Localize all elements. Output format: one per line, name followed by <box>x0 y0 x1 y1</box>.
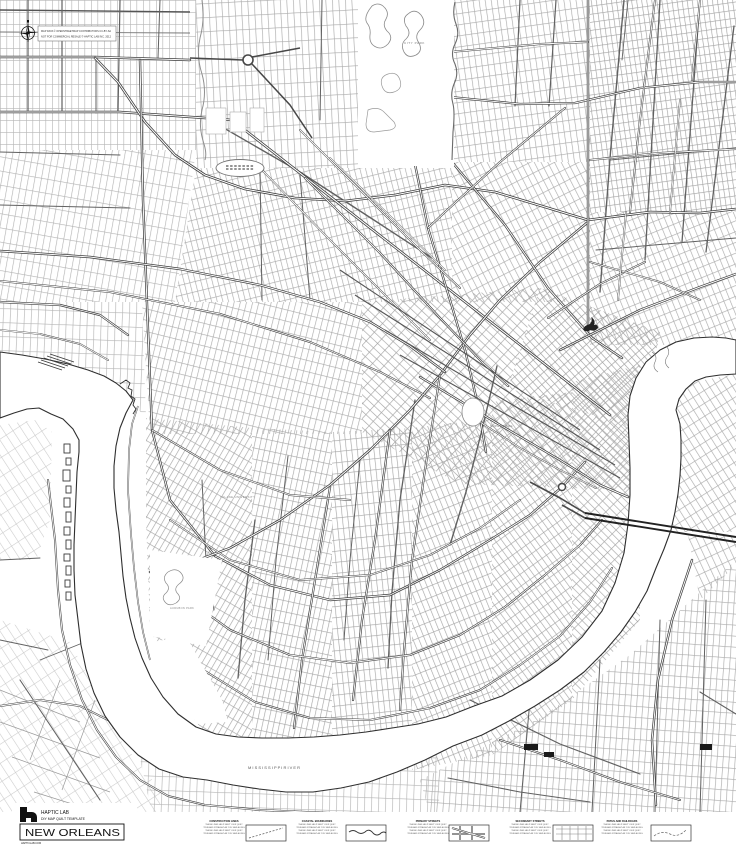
svg-text:NEW ORLEANS: NEW ORLEANS <box>25 827 120 839</box>
svg-text:CONSTRUCTION LINES: CONSTRUCTION LINES <box>209 819 239 823</box>
svg-text:PATHS AND RAILROADS: PATHS AND RAILROADS <box>607 819 638 823</box>
svg-text:THESE LINES HELP KEEP YOUR QUI: THESE LINES HELP KEEP YOUR QUILT <box>603 830 641 832</box>
svg-text:THESE LINES HELP KEEP YOUR QUI: THESE LINES HELP KEEP YOUR QUILT <box>511 824 549 826</box>
svg-text:TRUE AND STRAIGHT AS YOU SEW A: TRUE AND STRAIGHT AS YOU SEW ALONG <box>296 832 338 835</box>
svg-text:TRUE AND STRAIGHT AS YOU SEW A: TRUE AND STRAIGHT AS YOU SEW ALONG <box>203 832 245 835</box>
svg-text:TRUE AND STRAIGHT AS YOU SEW A: TRUE AND STRAIGHT AS YOU SEW ALONG <box>601 832 643 835</box>
svg-text:THESE LINES HELP KEEP YOUR QUI: THESE LINES HELP KEEP YOUR QUILT <box>511 830 549 832</box>
svg-text:TULANE UNIVERSITY: TULANE UNIVERSITY <box>220 495 255 499</box>
svg-text:DIY MAP QUILT TEMPLATE: DIY MAP QUILT TEMPLATE <box>41 817 86 821</box>
svg-text:AUDUBON PARK: AUDUBON PARK <box>170 606 194 610</box>
svg-text:THESE LINES HELP KEEP YOUR QUI: THESE LINES HELP KEEP YOUR QUILT <box>603 824 641 826</box>
svg-text:THESE LINES HELP KEEP YOUR QUI: THESE LINES HELP KEEP YOUR QUILT <box>298 824 336 826</box>
svg-text:TRUE AND STRAIGHT AS YOU SEW A: TRUE AND STRAIGHT AS YOU SEW ALONG <box>407 832 449 835</box>
svg-text:SUPERDOME: SUPERDOME <box>490 424 513 428</box>
svg-text:MAP DATA © OPENSTREETMAP CONTR: MAP DATA © OPENSTREETMAP CONTRIBUTORS CC… <box>41 29 111 33</box>
svg-text:TRUE AND STRAIGHT AS YOU SEW A: TRUE AND STRAIGHT AS YOU SEW ALONG <box>601 826 643 829</box>
svg-text:THESE LINES HELP KEEP YOUR QUI: THESE LINES HELP KEEP YOUR QUILT <box>409 824 447 826</box>
svg-text:COASTAL BOUNDARIES: COASTAL BOUNDARIES <box>302 819 333 823</box>
svg-text:HAPTIC LAB: HAPTIC LAB <box>41 810 69 816</box>
svg-text:TRUE AND STRAIGHT AS YOU SEW A: TRUE AND STRAIGHT AS YOU SEW ALONG <box>203 826 245 829</box>
svg-text:THESE LINES HELP KEEP YOUR QUI: THESE LINES HELP KEEP YOUR QUILT <box>205 830 243 832</box>
svg-text:TRUE AND STRAIGHT AS YOU SEW A: TRUE AND STRAIGHT AS YOU SEW ALONG <box>509 832 551 835</box>
svg-text:THESE LINES HELP KEEP YOUR QUI: THESE LINES HELP KEEP YOUR QUILT <box>205 824 243 826</box>
svg-text:M I S S I S S I P P I R I V: M I S S I S S I P P I R I V E R <box>248 766 301 770</box>
svg-text:THESE LINES HELP KEEP YOUR QUI: THESE LINES HELP KEEP YOUR QUILT <box>298 830 336 832</box>
svg-text:HAPTICLAB.COM: HAPTICLAB.COM <box>21 841 41 845</box>
svg-text:PRIMARY STREETS: PRIMARY STREETS <box>416 819 441 823</box>
svg-text:TRUE AND STRAIGHT AS YOU SEW A: TRUE AND STRAIGHT AS YOU SEW ALONG <box>509 826 551 829</box>
svg-text:CITY PARK: CITY PARK <box>404 41 425 45</box>
svg-text:TRUE AND STRAIGHT AS YOU SEW A: TRUE AND STRAIGHT AS YOU SEW ALONG <box>407 826 449 829</box>
svg-text:THESE LINES HELP KEEP YOUR QUI: THESE LINES HELP KEEP YOUR QUILT <box>409 830 447 832</box>
svg-text:SECONDARY STREETS: SECONDARY STREETS <box>515 819 544 823</box>
svg-text:TRUE AND STRAIGHT AS YOU SEW A: TRUE AND STRAIGHT AS YOU SEW ALONG <box>296 826 338 829</box>
svg-text:NOT FOR COMMERCIAL RESALE © HA: NOT FOR COMMERCIAL RESALE © HAPTIC LAB I… <box>41 35 111 39</box>
